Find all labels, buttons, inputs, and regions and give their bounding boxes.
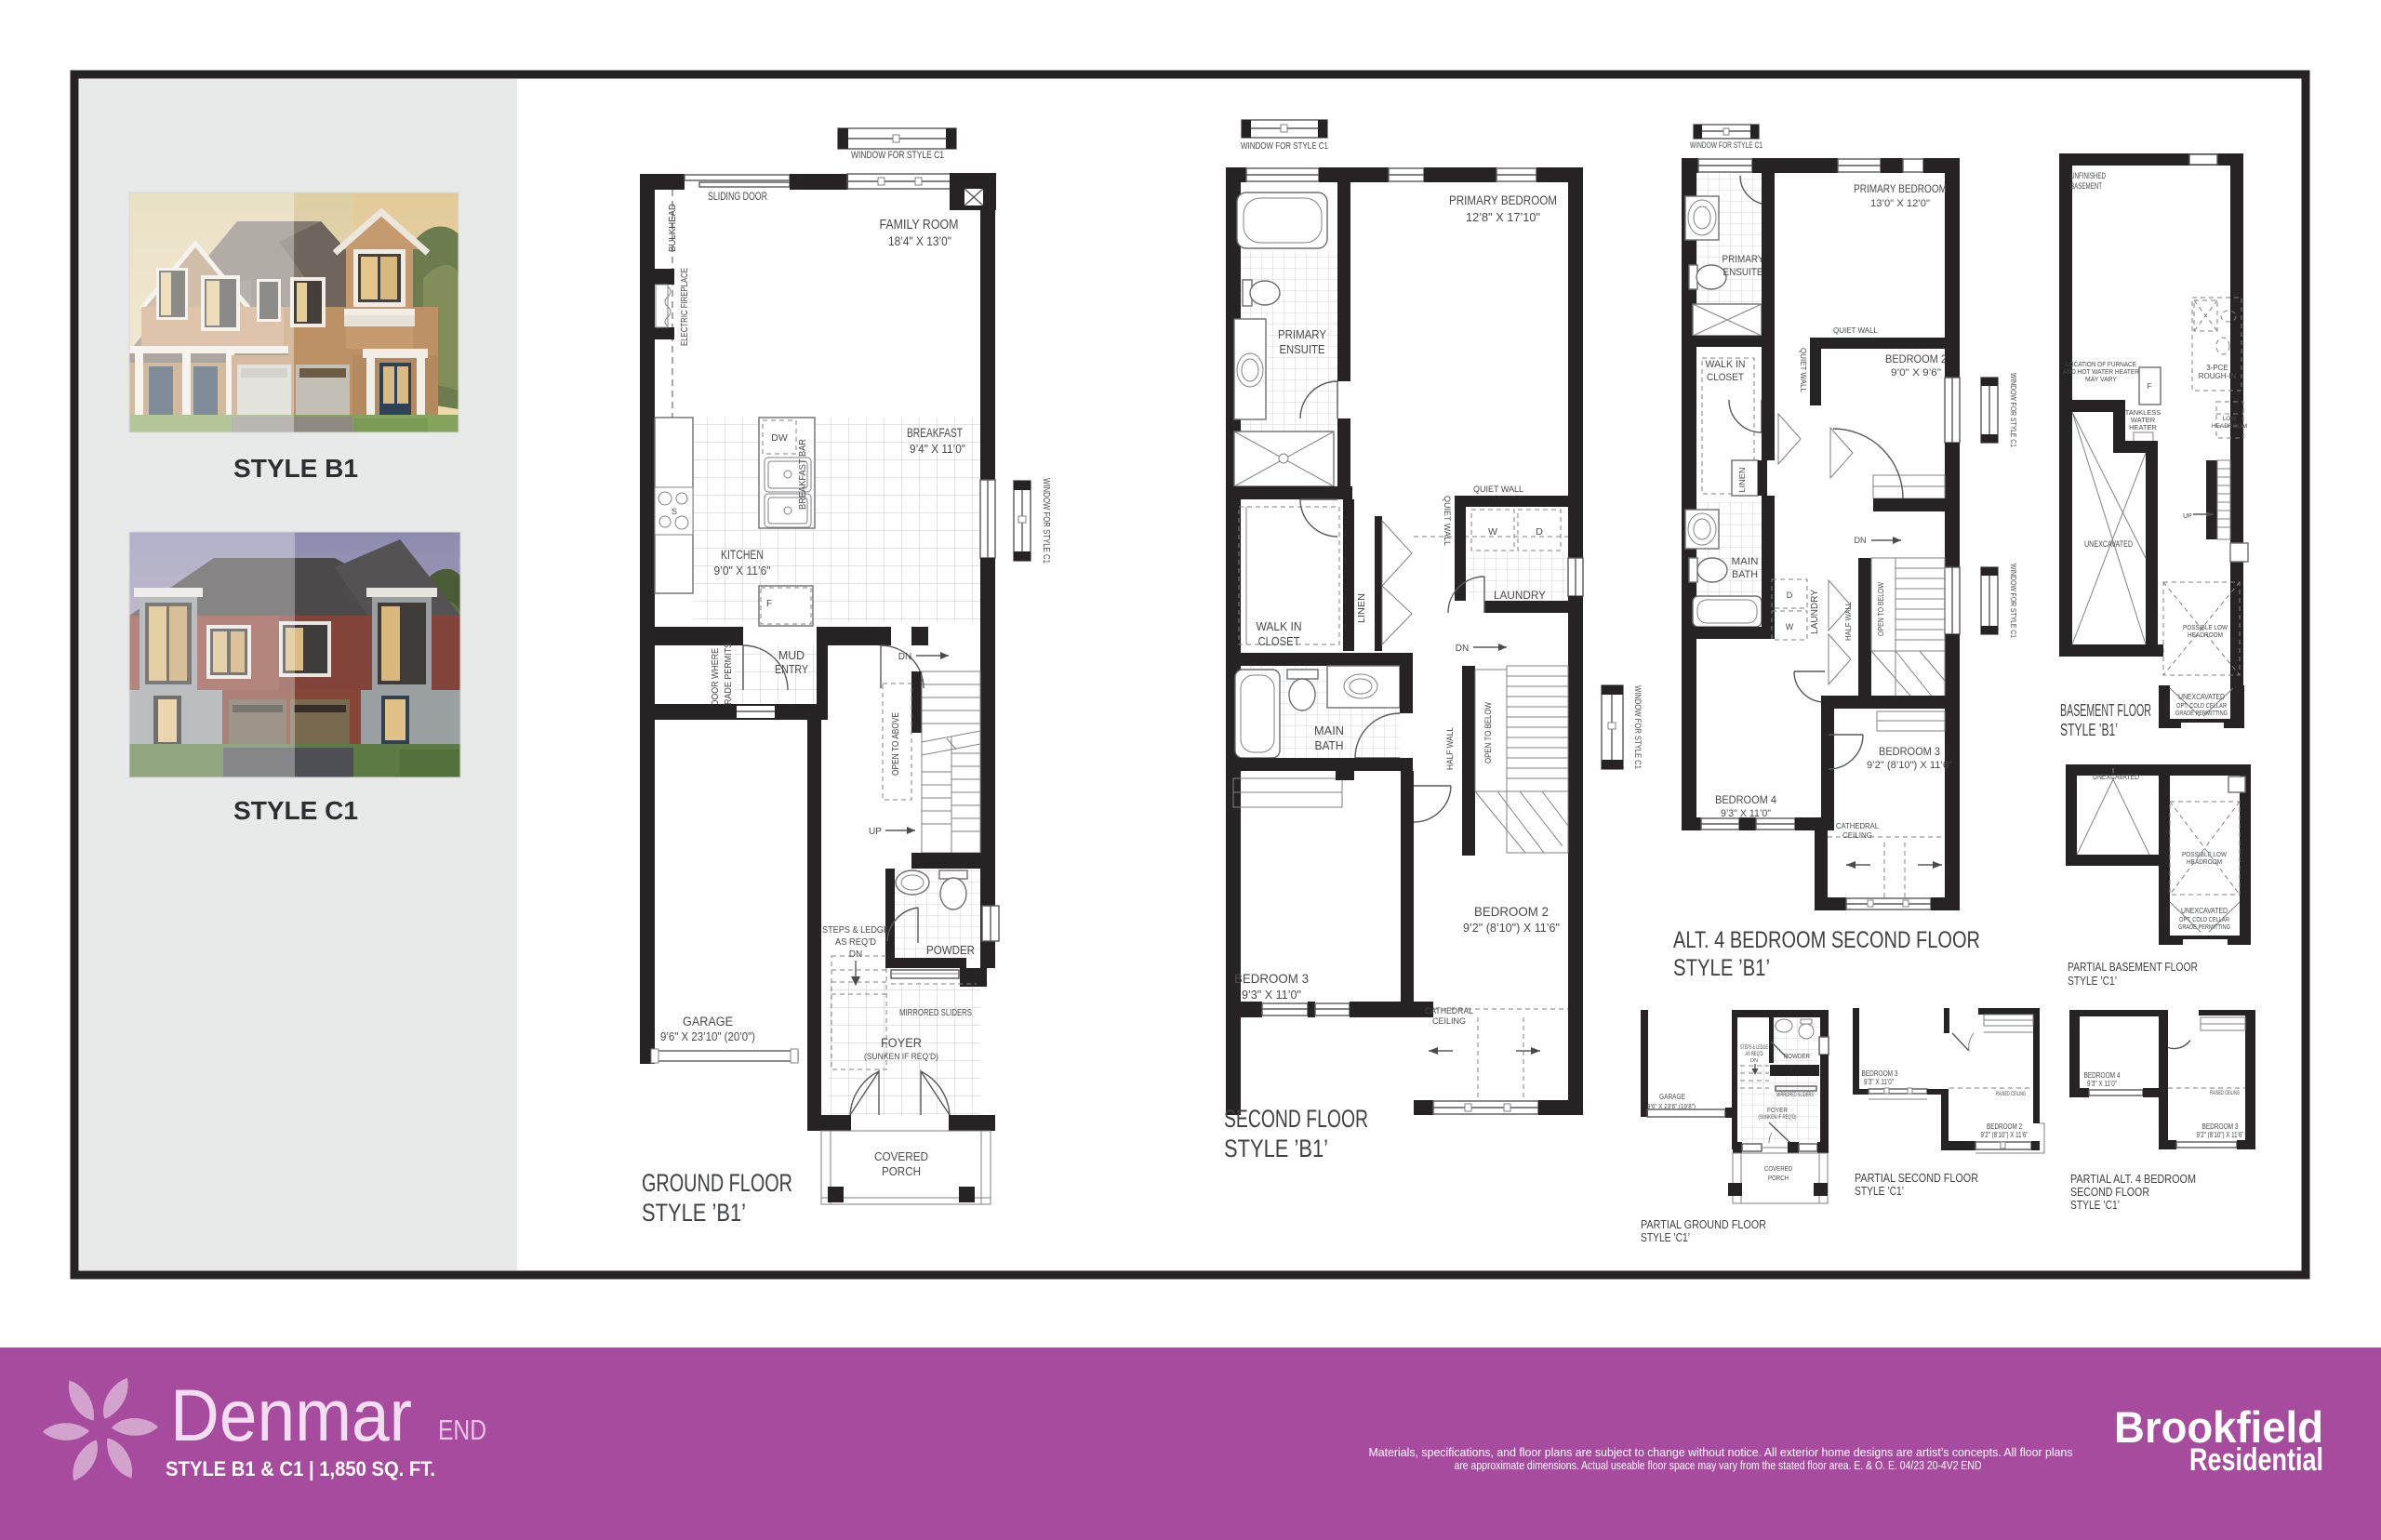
svg-text:PRIMARY: PRIMARY bbox=[1278, 328, 1327, 341]
svg-text:UNEXCAVATED: UNEXCAVATED bbox=[2178, 692, 2225, 701]
svg-text:9’6" X 23’10" (20’0"): 9’6" X 23’10" (20’0") bbox=[660, 1030, 755, 1043]
svg-text:BULKHEAD: BULKHEAD bbox=[667, 204, 678, 252]
svg-text:LOW: LOW bbox=[2223, 416, 2238, 422]
svg-text:9’0" X 9’6": 9’0" X 9’6" bbox=[1891, 367, 1941, 378]
svg-text:QUIET WALL: QUIET WALL bbox=[1473, 485, 1523, 495]
svg-text:OPT. COLD CELLAR: OPT. COLD CELLAR bbox=[2176, 703, 2227, 710]
svg-text:9’3" X 11’0": 9’3" X 11’0" bbox=[1242, 988, 1301, 1002]
svg-text:PARTIAL GROUND FLOOR: PARTIAL GROUND FLOOR bbox=[1641, 1218, 1766, 1231]
svg-text:LAUNDRY: LAUNDRY bbox=[1494, 589, 1546, 602]
svg-text:SECOND FLOOR: SECOND FLOOR bbox=[2070, 1186, 2149, 1199]
svg-text:ROUGH-IN: ROUGH-IN bbox=[2199, 372, 2237, 380]
svg-text:STYLE ’B1’: STYLE ’B1’ bbox=[1673, 955, 1770, 981]
svg-text:PARTIAL BASEMENT FLOOR: PARTIAL BASEMENT FLOOR bbox=[2068, 961, 2198, 974]
svg-text:POSSIBLE LOW: POSSIBLE LOW bbox=[2182, 852, 2227, 858]
svg-text:DN: DN bbox=[1456, 644, 1469, 654]
svg-text:BEDROOM 3: BEDROOM 3 bbox=[2202, 1122, 2239, 1131]
svg-text:OPEN TO BELOW: OPEN TO BELOW bbox=[1876, 582, 1885, 636]
svg-text:WINDOW FOR STYLE C1: WINDOW FOR STYLE C1 bbox=[1041, 478, 1051, 564]
svg-text:HALF WALL: HALF WALL bbox=[1843, 602, 1853, 641]
svg-text:DN: DN bbox=[1750, 1058, 1758, 1064]
svg-text:PORCH: PORCH bbox=[882, 1165, 921, 1178]
svg-text:RAISED CEILING: RAISED CEILING bbox=[1996, 1091, 2026, 1097]
svg-text:STYLE ’B1’: STYLE ’B1’ bbox=[1224, 1135, 1328, 1162]
svg-text:MAIN: MAIN bbox=[1314, 724, 1344, 737]
svg-text:UP: UP bbox=[2183, 513, 2192, 520]
svg-text:9’2" (8’10") X 11’6": 9’2" (8’10") X 11’6" bbox=[1463, 921, 1560, 935]
svg-text:UNEXCAVATED: UNEXCAVATED bbox=[2084, 539, 2133, 549]
svg-text:CLOSET: CLOSET bbox=[1258, 635, 1300, 648]
svg-text:GRADE PERMITTING: GRADE PERMITTING bbox=[2175, 710, 2228, 717]
svg-text:BEDROOM 4: BEDROOM 4 bbox=[2084, 1070, 2121, 1080]
svg-text:GRADE PERMITS: GRADE PERMITS bbox=[723, 643, 734, 711]
svg-text:MAY VARY: MAY VARY bbox=[2085, 375, 2117, 383]
svg-text:BASEMENT FLOOR: BASEMENT FLOOR bbox=[2060, 701, 2151, 720]
svg-text:9’2" (8’10") X 11’6": 9’2" (8’10") X 11’6" bbox=[2197, 1131, 2244, 1139]
svg-text:END: END bbox=[438, 1414, 486, 1446]
svg-text:BEDROOM 3: BEDROOM 3 bbox=[1234, 971, 1309, 986]
svg-text:BATH: BATH bbox=[1732, 569, 1758, 580]
svg-text:BEDROOM 2: BEDROOM 2 bbox=[1987, 1122, 2022, 1131]
svg-text:BEDROOM 3: BEDROOM 3 bbox=[1879, 747, 1940, 758]
svg-text:BEDROOM 2: BEDROOM 2 bbox=[1474, 904, 1549, 919]
svg-text:HALF WALL: HALF WALL bbox=[1445, 727, 1456, 770]
svg-text:KITCHEN: KITCHEN bbox=[721, 548, 764, 562]
svg-text:STYLE ’B1’: STYLE ’B1’ bbox=[642, 1199, 746, 1227]
svg-text:BEDROOM 3: BEDROOM 3 bbox=[1862, 1069, 1898, 1078]
svg-text:WINDOW FOR STYLE C1: WINDOW FOR STYLE C1 bbox=[2009, 373, 2018, 447]
svg-text:ENSUITE: ENSUITE bbox=[1723, 267, 1763, 278]
svg-text:are approximate dimensions. Ac: are approximate dimensions. Actual useab… bbox=[1455, 1458, 1982, 1472]
svg-text:HEADROOM: HEADROOM bbox=[2188, 632, 2223, 639]
svg-text:STEPS & LEDGE: STEPS & LEDGE bbox=[822, 924, 889, 936]
svg-text:POWDER: POWDER bbox=[926, 944, 975, 957]
svg-text:OPEN TO ABOVE: OPEN TO ABOVE bbox=[891, 712, 901, 776]
svg-text:ENTRY: ENTRY bbox=[775, 663, 809, 676]
svg-text:CATHEDRAL: CATHEDRAL bbox=[1836, 821, 1879, 830]
svg-text:STYLE ’C1’: STYLE ’C1’ bbox=[2068, 975, 2117, 988]
svg-text:STYLE ’C1’: STYLE ’C1’ bbox=[2070, 1199, 2120, 1212]
svg-text:ENSUITE: ENSUITE bbox=[1280, 343, 1325, 356]
svg-text:D: D bbox=[1787, 591, 1793, 600]
svg-text:F: F bbox=[766, 599, 772, 609]
svg-text:9’2" (8’10") X 11’6": 9’2" (8’10") X 11’6" bbox=[1867, 760, 1952, 771]
svg-text:DW: DW bbox=[771, 432, 788, 444]
svg-text:FOYER: FOYER bbox=[1767, 1106, 1788, 1114]
svg-text:SECOND FLOOR: SECOND FLOOR bbox=[1224, 1105, 1368, 1133]
svg-text:Denmar: Denmar bbox=[170, 1374, 412, 1456]
svg-text:AS REQ’D: AS REQ’D bbox=[1746, 1052, 1763, 1057]
svg-text:STEPS & LEDGE: STEPS & LEDGE bbox=[1740, 1045, 1768, 1051]
svg-text:WINDOW FOR STYLE C1: WINDOW FOR STYLE C1 bbox=[1241, 141, 1328, 152]
svg-text:F: F bbox=[2148, 382, 2152, 391]
svg-text:COVERED: COVERED bbox=[1764, 1164, 1792, 1173]
svg-text:STYLE ’C1’: STYLE ’C1’ bbox=[1855, 1185, 1904, 1198]
svg-text:BASEMENT: BASEMENT bbox=[2070, 181, 2102, 192]
svg-text:(SUNKEN IF REQ’D): (SUNKEN IF REQ’D) bbox=[864, 1052, 938, 1062]
svg-text:LINEN: LINEN bbox=[1737, 468, 1747, 493]
svg-text:DN: DN bbox=[849, 949, 862, 960]
svg-text:9’3" X 11’0": 9’3" X 11’0" bbox=[2087, 1080, 2117, 1088]
svg-text:RAISED CEILING: RAISED CEILING bbox=[2210, 1090, 2240, 1096]
svg-text:GROUND FLOOR: GROUND FLOOR bbox=[642, 1169, 792, 1197]
svg-text:PRIMARY BEDROOM: PRIMARY BEDROOM bbox=[1449, 192, 1557, 207]
svg-text:CATHEDRAL: CATHEDRAL bbox=[1425, 1006, 1473, 1016]
svg-text:FAMILY ROOM: FAMILY ROOM bbox=[880, 217, 959, 232]
svg-text:HEADROOM: HEADROOM bbox=[2212, 423, 2247, 430]
svg-text:OPEN TO BELOW: OPEN TO BELOW bbox=[1483, 702, 1494, 763]
svg-text:PORCH: PORCH bbox=[1768, 1174, 1789, 1182]
svg-text:MIRRORED SLIDERS: MIRRORED SLIDERS bbox=[1776, 1093, 1814, 1098]
svg-text:W: W bbox=[1488, 526, 1497, 538]
svg-text:Residential: Residential bbox=[2189, 1442, 2323, 1478]
svg-text:WALK IN: WALK IN bbox=[1257, 620, 1302, 633]
svg-text:AS REQ’D: AS REQ’D bbox=[835, 936, 876, 948]
svg-text:9’0" X 11’6": 9’0" X 11’6" bbox=[714, 564, 771, 577]
svg-text:3-PCE: 3-PCE bbox=[2206, 364, 2228, 372]
svg-text:QUIET WALL: QUIET WALL bbox=[1799, 348, 1808, 392]
svg-text:CEILING: CEILING bbox=[1842, 830, 1872, 840]
svg-text:MIRRORED SLIDERS: MIRRORED SLIDERS bbox=[899, 1008, 972, 1018]
svg-text:STYLE ’B1’: STYLE ’B1’ bbox=[2060, 721, 2118, 739]
svg-text:UP: UP bbox=[869, 827, 882, 837]
svg-text:HEATER: HEATER bbox=[2129, 423, 2157, 431]
svg-text:9’3" X 11’0": 9’3" X 11’0" bbox=[1864, 1078, 1894, 1086]
svg-text:HEADROOM: HEADROOM bbox=[2187, 859, 2222, 866]
svg-text:DN: DN bbox=[898, 652, 911, 662]
svg-text:BREAKFAST BAR: BREAKFAST BAR bbox=[798, 439, 808, 510]
svg-text:BEDROOM 2: BEDROOM 2 bbox=[1885, 354, 1947, 365]
svg-text:W: W bbox=[1786, 622, 1794, 631]
svg-text:BATH: BATH bbox=[1315, 739, 1344, 752]
svg-text:WINDOW FOR STYLE C1: WINDOW FOR STYLE C1 bbox=[1690, 140, 1762, 150]
svg-text:SLIDING DOOR: SLIDING DOOR bbox=[708, 190, 767, 203]
svg-text:DN: DN bbox=[1855, 536, 1867, 545]
svg-text:Materials, specifications, and: Materials, specifications, and floor pla… bbox=[1369, 1445, 2073, 1459]
svg-text:WINDOW FOR STYLE C1: WINDOW FOR STYLE C1 bbox=[1632, 685, 1643, 769]
svg-text:UNEXCAVATED: UNEXCAVATED bbox=[2093, 772, 2139, 781]
svg-text:UNFINISHED: UNFINISHED bbox=[2070, 171, 2106, 181]
svg-text:GARAGE: GARAGE bbox=[1659, 1093, 1685, 1101]
svg-text:POSSIBLE LOW: POSSIBLE LOW bbox=[2183, 625, 2228, 631]
svg-text:BEDROOM 4: BEDROOM 4 bbox=[1715, 795, 1777, 806]
svg-text:13’0" X 12’0": 13’0" X 12’0" bbox=[1870, 198, 1930, 209]
svg-text:PARTIAL SECOND FLOOR: PARTIAL SECOND FLOOR bbox=[1855, 1172, 1978, 1185]
svg-text:LAUNDRY: LAUNDRY bbox=[1810, 590, 1820, 634]
svg-text:CLOSET: CLOSET bbox=[1707, 372, 1744, 383]
svg-text:STYLE B1 & C1 | 1,850 SQ. FT.: STYLE B1 & C1 | 1,850 SQ. FT. bbox=[166, 1457, 435, 1480]
svg-text:WINDOW FOR STYLE C1: WINDOW FOR STYLE C1 bbox=[851, 150, 944, 161]
svg-text:PRIMARY BEDROOM: PRIMARY BEDROOM bbox=[1854, 182, 1947, 195]
svg-text:MUD: MUD bbox=[778, 649, 805, 662]
svg-text:QUIET WALL: QUIET WALL bbox=[1442, 496, 1452, 546]
svg-text:GARAGE: GARAGE bbox=[683, 1015, 733, 1029]
svg-text:WALK IN: WALK IN bbox=[1706, 359, 1746, 370]
svg-text:12’8" X 17’10": 12’8" X 17’10" bbox=[1466, 210, 1540, 224]
svg-text:MAIN: MAIN bbox=[1732, 556, 1759, 567]
svg-text:WINDOW FOR STYLE C1: WINDOW FOR STYLE C1 bbox=[2009, 564, 2018, 638]
svg-text:ELECTRIC FIREPLACE: ELECTRIC FIREPLACE bbox=[679, 268, 690, 346]
svg-text:CEILING: CEILING bbox=[1432, 1016, 1466, 1027]
svg-text:OPT. COLD CELLAR: OPT. COLD CELLAR bbox=[2179, 917, 2229, 923]
svg-text:QUIET WALL: QUIET WALL bbox=[1833, 325, 1878, 335]
svg-text:POWDER: POWDER bbox=[1784, 1052, 1810, 1060]
svg-text:9’2" (8’10") X 11’6": 9’2" (8’10") X 11’6" bbox=[1981, 1131, 2029, 1139]
svg-text:PARTIAL ALT. 4 BEDROOM: PARTIAL ALT. 4 BEDROOM bbox=[2070, 1173, 2196, 1186]
svg-text:FOYER: FOYER bbox=[881, 1036, 922, 1050]
svg-text:DOOR WHERE: DOOR WHERE bbox=[710, 648, 721, 706]
svg-text:S: S bbox=[672, 507, 677, 516]
svg-text:STYLE B1: STYLE B1 bbox=[233, 454, 358, 483]
svg-text:(SUNKEN IF REQ’D): (SUNKEN IF REQ’D) bbox=[1759, 1115, 1797, 1121]
svg-text:STYLE C1: STYLE C1 bbox=[233, 796, 358, 825]
svg-text:STYLE ’C1’: STYLE ’C1’ bbox=[1641, 1231, 1690, 1244]
svg-text:D: D bbox=[1536, 526, 1543, 538]
svg-text:UNEXCAVATED: UNEXCAVATED bbox=[2181, 906, 2228, 915]
svg-text:GRADE PERMITTING: GRADE PERMITTING bbox=[2178, 924, 2230, 931]
svg-text:LINEN: LINEN bbox=[1356, 593, 1367, 623]
svg-text:ALT. 4 BEDROOM SECOND FLOOR: ALT. 4 BEDROOM SECOND FLOOR bbox=[1673, 927, 1980, 953]
svg-text:COVERED: COVERED bbox=[874, 1150, 928, 1163]
svg-text:18’4" X 13’0": 18’4" X 13’0" bbox=[888, 233, 951, 248]
svg-text:PRIMARY: PRIMARY bbox=[1723, 254, 1765, 265]
svg-text:9’4" X 11’0": 9’4" X 11’0" bbox=[910, 443, 965, 456]
svg-text:BREAKFAST: BREAKFAST bbox=[907, 426, 963, 440]
